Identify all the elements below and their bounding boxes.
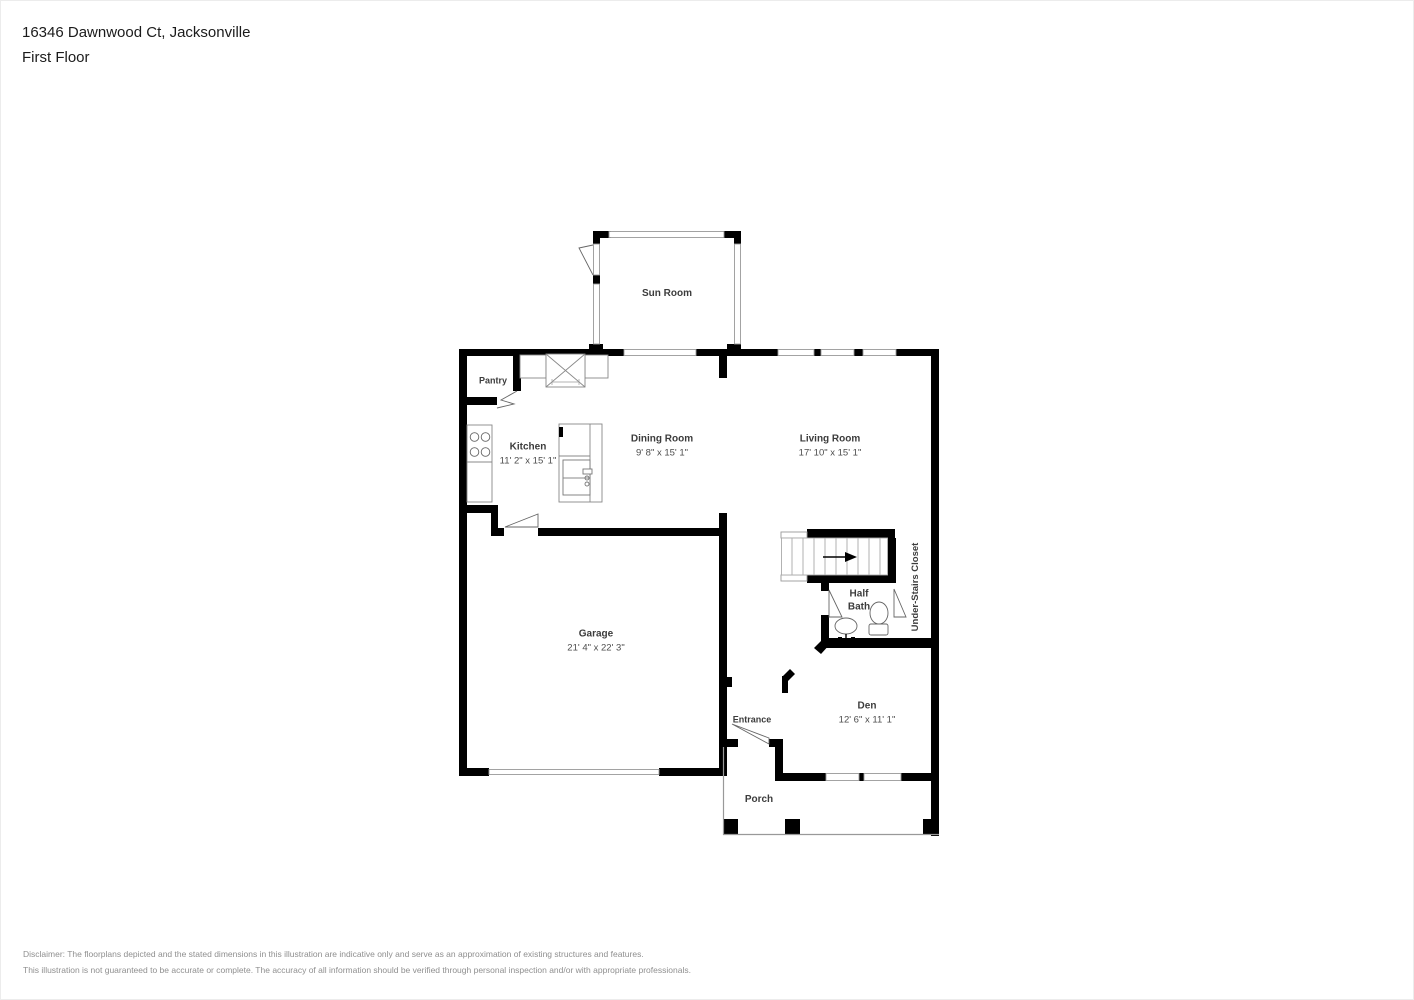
label-pantry: Pantry	[479, 375, 507, 386]
garage-door-leaf	[505, 514, 538, 527]
room-name: Porch	[745, 794, 773, 807]
windows	[489, 232, 901, 781]
label-den: Den 12' 6" x 11' 1"	[839, 700, 896, 725]
doors	[497, 245, 906, 744]
kitchen-island	[559, 424, 602, 502]
room-dimensions: 17' 10" x 15' 1"	[799, 447, 862, 459]
floorplan-page: 16346 Dawnwood Ct, Jacksonville First Fl…	[0, 0, 1414, 1000]
pedestal-sink	[835, 618, 857, 641]
label-garage: Garage 21' 4" x 22' 3"	[567, 628, 624, 653]
sink-cabinet	[546, 354, 585, 387]
room-name: Half Bath	[840, 589, 878, 614]
label-porch: Porch	[745, 794, 773, 807]
label-dining-room: Dining Room 9' 8" x 15' 1"	[631, 433, 693, 458]
label-living-room: Living Room 17' 10" x 15' 1"	[799, 433, 862, 458]
porch-outline	[723, 747, 939, 835]
pantry-bifold-door	[497, 391, 517, 408]
closet-door-leaf	[894, 589, 906, 617]
disclaimer-line-1: Disclaimer: The floorplans depicted and …	[23, 949, 644, 959]
room-dimensions: 11' 2" x 15' 1"	[500, 455, 557, 467]
label-entrance: Entrance	[733, 714, 772, 725]
walls	[459, 231, 939, 836]
room-dimensions: 12' 6" x 11' 1"	[839, 714, 896, 726]
room-name: Garage	[567, 628, 624, 641]
room-name: Under-Stairs Closet	[910, 543, 922, 632]
label-under-stairs-closet: Under-Stairs Closet	[910, 543, 922, 632]
room-name: Living Room	[799, 433, 862, 446]
room-name: Sun Room	[642, 288, 692, 301]
label-kitchen: Kitchen 11' 2" x 15' 1"	[500, 441, 557, 466]
room-name: Kitchen	[500, 441, 557, 454]
stove	[467, 425, 492, 502]
room-name: Dining Room	[631, 433, 693, 446]
floorplan-drawing	[1, 1, 1414, 1000]
disclaimer-line-2: This illustration is not guaranteed to b…	[23, 965, 691, 975]
room-name: Den	[839, 700, 896, 713]
room-dimensions: 9' 8" x 15' 1"	[631, 447, 693, 459]
label-sun-room: Sun Room	[642, 288, 692, 301]
staircase	[782, 538, 888, 575]
room-dimensions: 21' 4" x 22' 3"	[567, 642, 624, 654]
sunroom-door-leaf	[579, 245, 593, 275]
room-name: Pantry	[479, 375, 507, 386]
label-half-bath: Half Bath	[840, 589, 878, 614]
room-name: Entrance	[733, 714, 772, 725]
